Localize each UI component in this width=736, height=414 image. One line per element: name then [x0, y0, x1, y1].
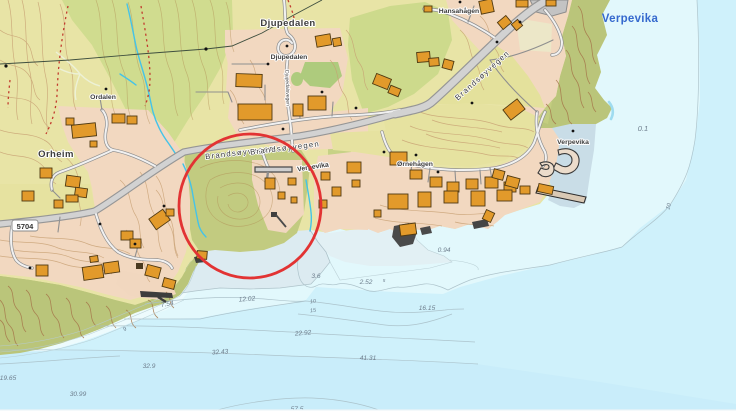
svg-text:22.92: 22.92 [294, 329, 312, 337]
svg-text:Djupedalen: Djupedalen [260, 18, 315, 29]
svg-text:30.99: 30.99 [70, 391, 87, 398]
svg-text:19.65: 19.65 [0, 375, 17, 382]
svg-text:0.94: 0.94 [438, 247, 451, 254]
svg-text:Orheim: Orheim [38, 149, 74, 160]
svg-text:Djupedalsvegen: Djupedalsvegen [283, 70, 290, 106]
svg-text:Hansahågen: Hansahågen [439, 7, 479, 15]
svg-text:Ørnehågen: Ørnehågen [397, 160, 433, 168]
svg-text:Verpevika: Verpevika [602, 13, 659, 25]
svg-text:32.9: 32.9 [143, 363, 156, 370]
svg-text:41.31: 41.31 [360, 355, 377, 362]
svg-text:3.6: 3.6 [311, 273, 320, 280]
svg-text:5704: 5704 [17, 222, 35, 231]
svg-text:Ordalen: Ordalen [90, 94, 116, 101]
svg-text:Djupedalen: Djupedalen [271, 54, 308, 61]
svg-text:16.15: 16.15 [419, 305, 436, 312]
svg-text:Verpevika: Verpevika [557, 139, 589, 146]
svg-text:2.52: 2.52 [359, 279, 373, 286]
svg-text:10: 10 [310, 299, 317, 306]
svg-text:32.43: 32.43 [212, 348, 229, 356]
svg-text:5: 5 [383, 278, 386, 283]
svg-text:0.1: 0.1 [638, 124, 648, 133]
svg-text:12.02: 12.02 [239, 295, 256, 303]
